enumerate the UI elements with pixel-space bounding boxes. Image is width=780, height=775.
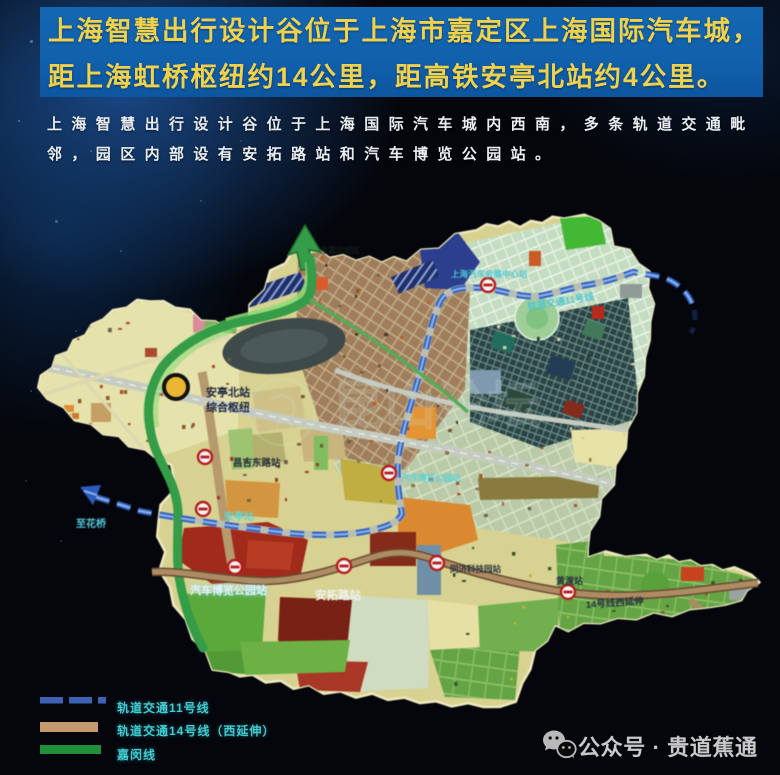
svg-text:至嘉定城区: 至嘉定城区: [320, 245, 360, 255]
svg-text:安拓路站: 安拓路站: [315, 588, 361, 602]
svg-text:上海汽车会展中心站: 上海汽车会展中心站: [451, 269, 528, 279]
svg-text:同济科技园站: 同济科技园站: [450, 564, 502, 574]
svg-text:汽车博览公园站: 汽车博览公园站: [401, 473, 461, 483]
svg-text:黄渡站: 黄渡站: [556, 575, 583, 586]
